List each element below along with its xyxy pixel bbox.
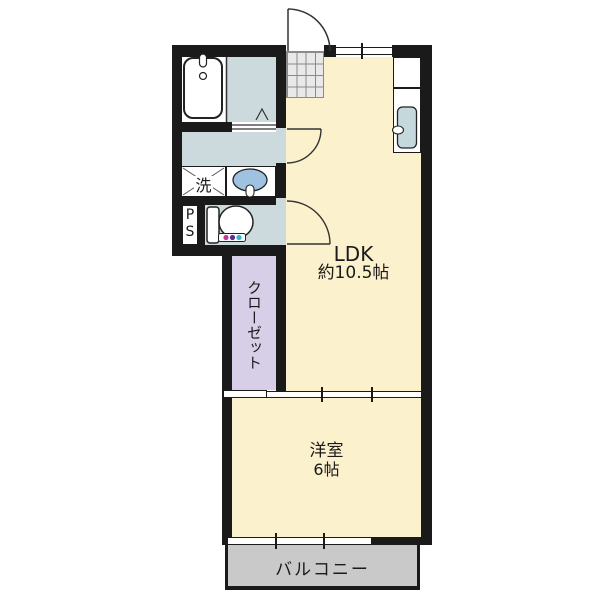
wall-segment [172, 122, 232, 132]
bathroom-floor [226, 57, 276, 122]
wall-segment [324, 45, 336, 57]
window-tick [361, 43, 363, 59]
balcony-label: バルコニー [225, 555, 420, 580]
ldk-label: LDK [286, 243, 421, 265]
closet-label: クローゼット [244, 260, 264, 390]
washroom-door-opening [276, 128, 286, 163]
washroom-floor [182, 126, 276, 166]
window-top [336, 47, 392, 55]
western-room-label: 洋室 [232, 442, 421, 461]
window-tick [275, 533, 277, 549]
wall-segment [276, 163, 286, 198]
floor-plan: LDK 約10.5帖 洋室 6帖 バルコニー クローゼット 洗 PS [0, 0, 600, 600]
wall-segment [172, 45, 286, 57]
kitchen-counter [393, 57, 421, 153]
window-tick [371, 387, 373, 402]
bathroom-folding-door-opening [232, 122, 276, 132]
kitchen-counter-divider [393, 87, 421, 89]
wall-segment [172, 197, 276, 205]
balcony-sliding-window [228, 537, 371, 545]
laundry-label: 洗 [181, 172, 226, 196]
wall-segment [421, 45, 432, 545]
wall-segment [172, 45, 182, 256]
wall-segment [371, 537, 432, 545]
wall-segment [276, 45, 286, 128]
bathtub-icon [184, 54, 222, 118]
western-room-size-label: 6帖 [232, 461, 421, 479]
wall-segment [276, 245, 286, 392]
washbasin-box [226, 166, 276, 197]
sliding-partition [267, 391, 421, 398]
toilet-room-floor [205, 205, 276, 245]
closet-sliding-door [223, 390, 267, 398]
wall-segment [198, 197, 205, 256]
ldk-size-label: 約10.5帖 [286, 264, 421, 283]
window-tick [321, 387, 323, 402]
pipe-space-label: PS [182, 207, 198, 241]
entrance-tile-grid [286, 51, 324, 98]
window-tick [323, 533, 325, 549]
toilet-door-opening [276, 198, 286, 245]
